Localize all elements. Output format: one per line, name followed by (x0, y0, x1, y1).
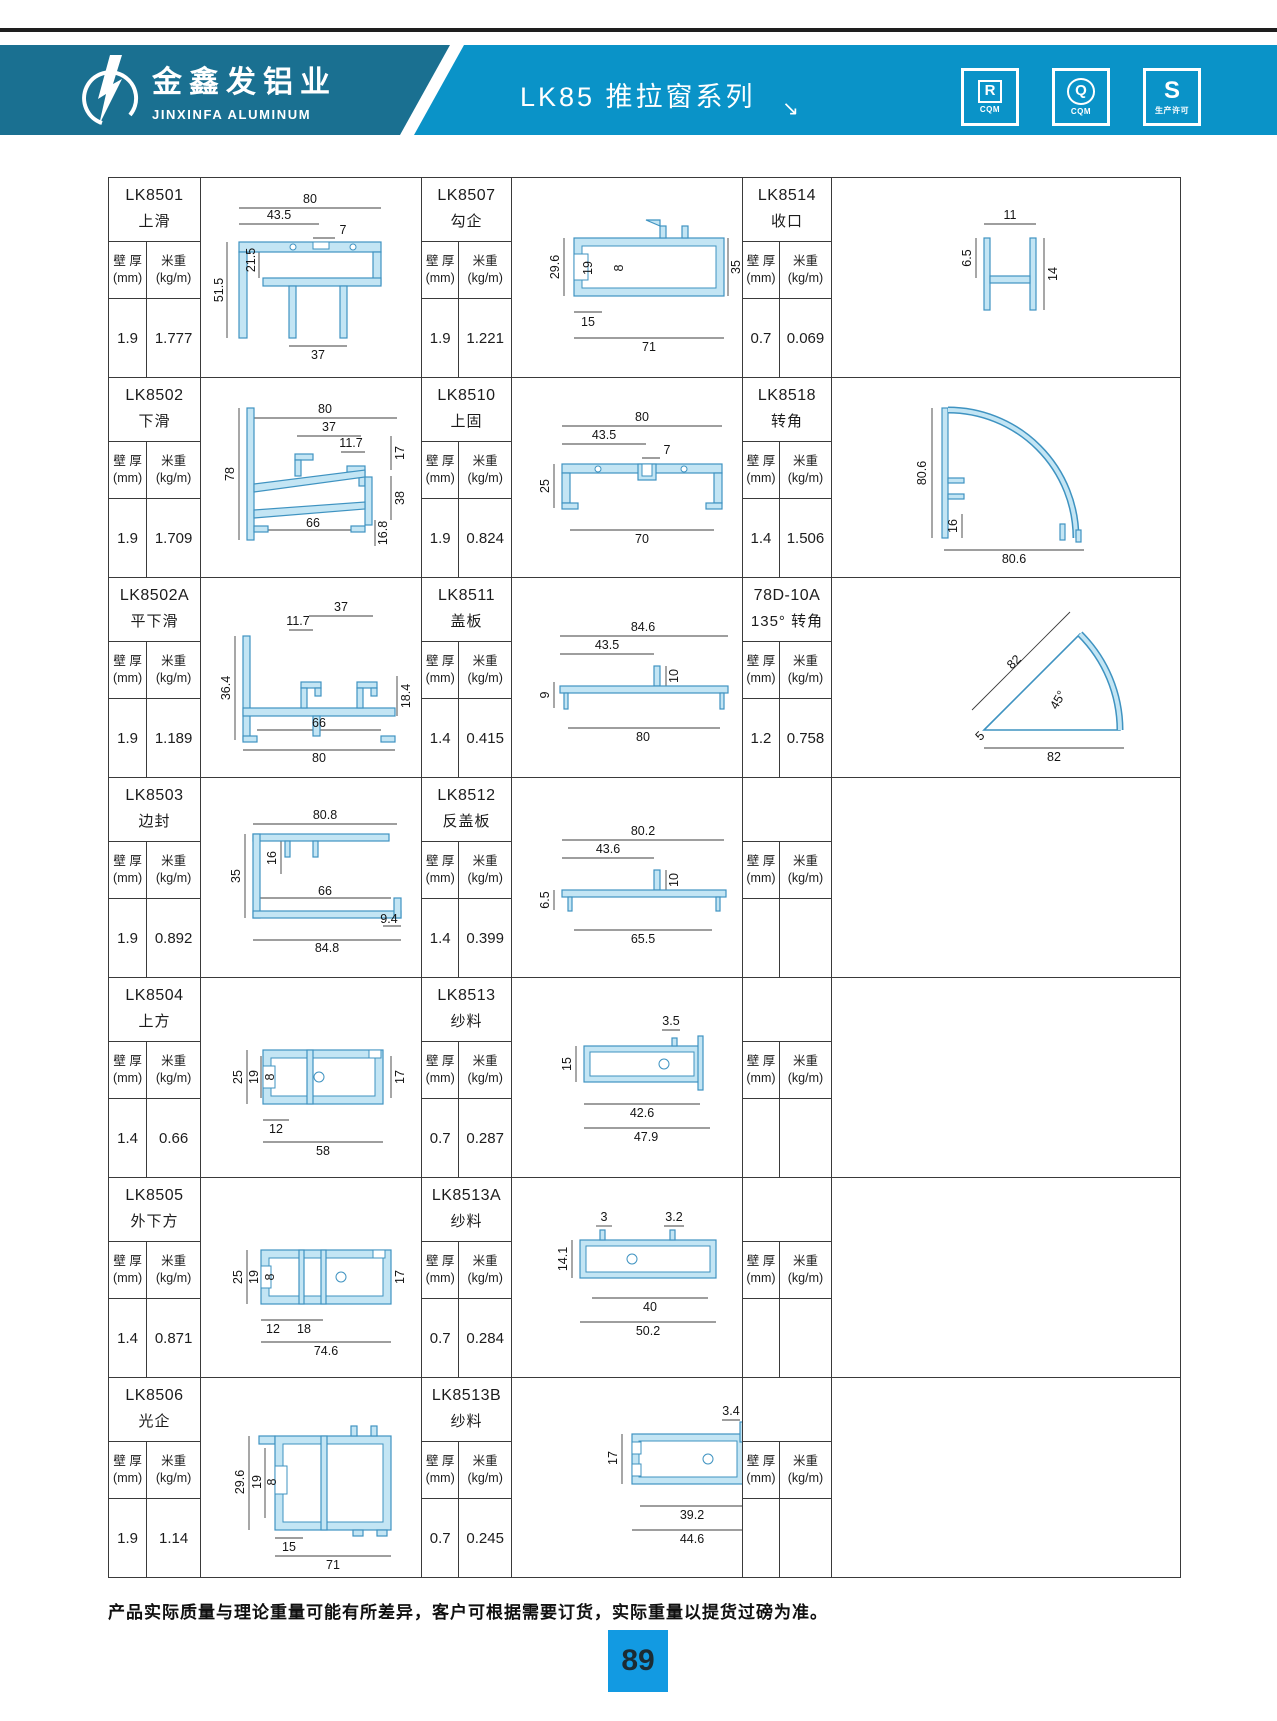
badge-letter: S (1164, 78, 1180, 104)
weight-value: 0.399 (459, 899, 511, 977)
dim-label: 3.2 (665, 1210, 682, 1224)
product-cell-LK8503: LK8503边封 壁 厚(mm) 米重(kg/m) 1.9 0.892 (109, 778, 201, 978)
profile-drawing-LK8511: 84.6 43.5 10 9 80 (512, 578, 743, 778)
dim-label: 15 (282, 1540, 296, 1554)
dim-label: 17 (393, 446, 407, 460)
product-cell-LK8511: LK8511盖板 壁 厚(mm) 米重(kg/m) 1.4 0.415 (422, 578, 512, 778)
profile-drawing-LK8513B: 3.4 17 39.2 44.6 (512, 1378, 743, 1578)
badge-subtext: 生产许可 (1155, 105, 1189, 116)
product-code: LK8513B (422, 1387, 511, 1405)
col-header-wall: 壁 厚(mm) (422, 842, 459, 898)
product-cell-LK8514: LK8514收口 壁 厚(mm) 米重(kg/m) 0.7 0.069 (743, 178, 832, 378)
wall-value: 1.9 (422, 299, 459, 377)
col-header-weight: 米重(kg/m) (780, 842, 831, 898)
col-header-wall: 壁 厚(mm) (422, 442, 459, 498)
dim-label: 50.2 (636, 1324, 660, 1338)
product-name: 纱料 (422, 1210, 511, 1231)
dim-label: 37 (322, 420, 336, 434)
dim-label: 6.5 (538, 891, 552, 908)
profile-drawing-LK8513: 3.5 15 42.6 47.9 (512, 978, 743, 1178)
wall-value: 0.7 (422, 1499, 459, 1577)
empty-drawing (832, 778, 1181, 978)
dim-label: 37 (334, 600, 348, 614)
profile-drawing-LK8505: 25 19 8 17 12 18 74.6 (201, 1178, 422, 1378)
col-header-weight: 米重(kg/m) (780, 242, 831, 298)
dim-label: 66 (306, 516, 320, 530)
product-name: 转角 (743, 410, 831, 431)
badge-q-cqm: Q CQM (1052, 68, 1110, 126)
col-header-wall: 壁 厚(mm) (743, 842, 780, 898)
series-title-text: LK85 推拉窗系列 (520, 82, 756, 112)
profile-drawing-LK8501: 80 43.5 7 21.5 51.5 37 (201, 178, 422, 378)
col-header-weight: 米重(kg/m) (147, 1442, 200, 1498)
wall-value: 1.9 (422, 499, 459, 577)
weight-value (780, 1299, 831, 1377)
dim-label: 9.4 (380, 912, 397, 926)
dim-label: 51.5 (212, 278, 226, 302)
profile-drawing-LK8503: 80.8 16 35 66 84.8 9.4 (201, 778, 422, 978)
product-cell-LK8506: LK8506光企 壁 厚(mm) 米重(kg/m) 1.9 1.14 (109, 1378, 201, 1578)
dim-label: 19 (247, 1070, 261, 1084)
dim-label: 66 (312, 716, 326, 730)
badge-letter: Q (1067, 78, 1095, 105)
dim-label: 12 (266, 1322, 280, 1336)
col-header-wall: 壁 厚(mm) (743, 242, 780, 298)
dim-label: 19 (247, 1270, 261, 1284)
col-header-wall: 壁 厚(mm) (743, 1242, 780, 1298)
dim-label: 14.1 (556, 1247, 570, 1271)
wall-value: 0.7 (743, 299, 780, 377)
empty-drawing (832, 978, 1181, 1178)
product-code: LK8501 (109, 187, 200, 205)
wall-value: 1.9 (109, 499, 147, 577)
badge-production-license: S 生产许可 (1143, 68, 1201, 126)
page-number-badge: 89 (608, 1630, 668, 1692)
page-number: 89 (621, 1644, 654, 1678)
dim-label: 14 (1046, 267, 1060, 281)
product-cell-LK8513B: LK8513B纱料 壁 厚(mm) 米重(kg/m) 0.7 0.245 (422, 1378, 512, 1578)
dim-label: 6.5 (960, 249, 974, 266)
wall-value (743, 899, 780, 977)
dim-label: 80 (318, 402, 332, 416)
product-name: 纱料 (422, 1410, 511, 1431)
product-code: LK8507 (422, 187, 511, 205)
dim-label: 80.6 (915, 461, 929, 485)
product-cell-LK8502A: LK8502A平下滑 壁 厚(mm) 米重(kg/m) 1.9 1.189 (109, 578, 201, 778)
col-header-wall: 壁 厚(mm) (422, 242, 459, 298)
dim-label: 11 (1004, 208, 1017, 222)
dim-label: 17 (393, 1070, 407, 1084)
profile-drawing-LK8514: 11 6.5 14 (832, 178, 1181, 378)
col-header-wall: 壁 厚(mm) (109, 1242, 147, 1298)
dim-label: 65.5 (631, 932, 655, 946)
dim-label: 80 (303, 192, 317, 206)
dim-label: 70 (635, 532, 649, 546)
dim-label: 16 (265, 851, 279, 865)
dim-label: 80 (312, 751, 326, 765)
col-header-weight: 米重(kg/m) (459, 842, 511, 898)
profile-drawing-LK8502A: 37 11.7 36.4 18.4 66 80 (201, 578, 422, 778)
dim-label: 8 (263, 1074, 277, 1081)
dim-label: 8 (263, 1274, 277, 1281)
product-code: LK8506 (109, 1387, 200, 1405)
dim-label: 43.5 (267, 208, 291, 222)
col-header-weight: 米重(kg/m) (459, 1242, 511, 1298)
col-header-wall: 壁 厚(mm) (422, 1442, 459, 1498)
weight-value: 0.758 (780, 699, 831, 777)
col-header-weight: 米重(kg/m) (459, 442, 511, 498)
profile-drawing-LK8513A: 3 3.2 14.1 40 50.2 (512, 1178, 743, 1378)
dim-label: 10 (667, 669, 681, 683)
product-cell-empty-2: 壁 厚(mm) 米重(kg/m) (743, 978, 832, 1178)
col-header-weight: 米重(kg/m) (459, 1042, 511, 1098)
product-name: 收口 (743, 210, 831, 231)
dim-label: 15 (581, 315, 595, 329)
col-header-wall: 壁 厚(mm) (109, 442, 147, 498)
product-name: 上滑 (109, 210, 200, 231)
wall-value: 1.4 (422, 699, 459, 777)
wall-value (743, 1099, 780, 1177)
dim-label: 42.6 (630, 1106, 654, 1120)
product-cell-LK8513: LK8513纱料 壁 厚(mm) 米重(kg/m) 0.7 0.287 (422, 978, 512, 1178)
weight-value (780, 1099, 831, 1177)
profile-drawing-LK8512: 80.2 43.6 10 6.5 65.5 (512, 778, 743, 978)
weight-value: 0.415 (459, 699, 511, 777)
weight-value: 1.221 (459, 299, 511, 377)
weight-value: 0.871 (147, 1299, 200, 1377)
wall-value: 1.2 (743, 699, 780, 777)
dim-label: 18 (297, 1322, 311, 1336)
product-cell-78D-10A: 78D-10A135° 转角 壁 厚(mm) 米重(kg/m) 1.2 0.75… (743, 578, 832, 778)
col-header-wall: 壁 厚(mm) (422, 1242, 459, 1298)
weight-value: 0.287 (459, 1099, 511, 1177)
empty-drawing (832, 1178, 1181, 1378)
dim-label: 11.7 (286, 614, 309, 628)
wall-value (743, 1299, 780, 1377)
product-name: 勾企 (422, 210, 511, 231)
dim-label: 17 (393, 1270, 407, 1284)
weight-value: 0.892 (147, 899, 200, 977)
col-header-wall: 壁 厚(mm) (422, 642, 459, 698)
product-name: 纱料 (422, 1010, 511, 1031)
col-header-weight: 米重(kg/m) (147, 842, 200, 898)
badge-subtext: CQM (1071, 107, 1091, 116)
product-table: LK8501上滑 壁 厚(mm) 米重(kg/m) 1.9 1.777 80 4… (108, 177, 1181, 1578)
product-code: LK8514 (743, 187, 831, 205)
profile-drawing-LK8506: 29.6 19 8 15 71 (201, 1378, 422, 1578)
profile-drawing-LK8502: 80 37 11.7 78 17 38 66 16.8 (201, 378, 422, 578)
dim-label: 84.6 (631, 620, 655, 634)
product-name: 上方 (109, 1010, 200, 1031)
col-header-wall: 壁 厚(mm) (109, 642, 147, 698)
dim-label: 7 (340, 223, 347, 237)
product-name: 反盖板 (422, 810, 511, 831)
dim-label: 35 (729, 260, 743, 274)
product-name: 上固 (422, 410, 511, 431)
dim-label: 58 (316, 1144, 330, 1158)
col-header-weight: 米重(kg/m) (780, 442, 831, 498)
empty-drawing (832, 1378, 1181, 1578)
dim-label: 17 (606, 1451, 620, 1465)
wall-value: 1.4 (109, 1299, 147, 1377)
col-header-wall: 壁 厚(mm) (743, 642, 780, 698)
product-cell-LK8512: LK8512反盖板 壁 厚(mm) 米重(kg/m) 1.4 0.399 (422, 778, 512, 978)
weight-value: 1.14 (147, 1499, 200, 1577)
product-cell-LK8513A: LK8513A纱料 壁 厚(mm) 米重(kg/m) 0.7 0.284 (422, 1178, 512, 1378)
dim-label: 35 (229, 869, 243, 883)
weight-value: 0.245 (459, 1499, 511, 1577)
dim-label: 29.6 (548, 255, 562, 279)
col-header-wall: 壁 厚(mm) (109, 842, 147, 898)
badge-r-cqm: R CQM (961, 68, 1019, 126)
profile-drawing-LK8518: 80.6 16 80.6 (832, 378, 1181, 578)
dim-label: 47.9 (634, 1130, 658, 1144)
dim-label: 3.4 (722, 1404, 739, 1418)
dim-label: 19 (581, 261, 595, 275)
dim-label: 25 (231, 1070, 245, 1084)
dim-label: 21.5 (244, 248, 258, 272)
product-code: LK8502A (109, 587, 200, 605)
col-header-wall: 壁 厚(mm) (109, 1042, 147, 1098)
dim-label: 43.5 (595, 638, 619, 652)
profile-drawing-LK8507: 29.6 19 8 15 71 35 (512, 178, 743, 378)
badge-subtext: CQM (980, 105, 1000, 114)
product-name: 135° 转角 (743, 610, 831, 631)
weight-value: 1.506 (780, 499, 831, 577)
dim-label: 84.8 (315, 941, 339, 955)
badge-letter: R (978, 80, 1003, 103)
product-name: 下滑 (109, 410, 200, 431)
col-header-weight: 米重(kg/m) (780, 1242, 831, 1298)
dim-label: 19 (250, 1475, 264, 1489)
product-code: LK8511 (422, 587, 511, 605)
product-name: 外下方 (109, 1210, 200, 1231)
product-code: LK8502 (109, 387, 200, 405)
brand-logo-icon (72, 53, 144, 132)
col-header-weight: 米重(kg/m) (147, 242, 200, 298)
brand-name-en: JINXINFA ALUMINUM (152, 107, 337, 122)
dim-label: 7 (664, 443, 671, 457)
product-code: LK8504 (109, 987, 200, 1005)
wall-value: 1.4 (422, 899, 459, 977)
dim-label: 8 (612, 265, 626, 272)
arrow-down-right-icon: ↘ (782, 96, 802, 121)
weight-value: 1.189 (147, 699, 200, 777)
wall-value: 1.9 (109, 899, 147, 977)
product-code: LK8510 (422, 387, 511, 405)
col-header-weight: 米重(kg/m) (147, 1042, 200, 1098)
col-header-weight: 米重(kg/m) (147, 642, 200, 698)
product-code: LK8505 (109, 1187, 200, 1205)
product-cell-LK8518: LK8518转角 壁 厚(mm) 米重(kg/m) 1.4 1.506 (743, 378, 832, 578)
dim-label: 82 (1047, 750, 1061, 764)
dim-label: 43.6 (596, 842, 620, 856)
dim-label: 80 (636, 730, 650, 744)
dim-label: 16 (946, 519, 960, 533)
dim-label: 43.5 (592, 428, 616, 442)
dim-label: 80.6 (1002, 552, 1026, 566)
profile-drawing-LK8510: 80 43.5 7 25 70 (512, 378, 743, 578)
product-name: 盖板 (422, 610, 511, 631)
dim-label: 80.2 (631, 824, 655, 838)
wall-value (743, 1499, 780, 1577)
product-cell-LK8507: LK8507勾企 壁 厚(mm) 米重(kg/m) 1.9 1.221 (422, 178, 512, 378)
product-cell-LK8510: LK8510上固 壁 厚(mm) 米重(kg/m) 1.9 0.824 (422, 378, 512, 578)
product-name: 边封 (109, 810, 200, 831)
product-code: 78D-10A (743, 587, 831, 605)
dim-label: 3.5 (662, 1014, 679, 1028)
col-header-weight: 米重(kg/m) (459, 242, 511, 298)
profile-drawing-LK8504: 25 19 8 17 12 58 (201, 978, 422, 1178)
dim-label: 66 (318, 884, 332, 898)
col-header-wall: 壁 厚(mm) (422, 1042, 459, 1098)
weight-value: 0.069 (780, 299, 831, 377)
wall-value: 0.7 (422, 1299, 459, 1377)
weight-value (780, 899, 831, 977)
product-code: LK8512 (422, 787, 511, 805)
wall-value: 1.9 (109, 1499, 147, 1577)
profile-drawing-78D-10A: 82 45° 5 82 (832, 578, 1181, 778)
col-header-weight: 米重(kg/m) (459, 1442, 511, 1498)
product-name: 光企 (109, 1410, 200, 1431)
product-cell-LK8505: LK8505外下方 壁 厚(mm) 米重(kg/m) 1.4 0.871 (109, 1178, 201, 1378)
weight-value (780, 1499, 831, 1577)
dim-label: 80.8 (313, 808, 337, 822)
col-header-wall: 壁 厚(mm) (743, 1042, 780, 1098)
dim-label: 29.6 (233, 1470, 247, 1494)
col-header-weight: 米重(kg/m) (147, 1242, 200, 1298)
dim-label: 3 (601, 1210, 608, 1224)
weight-value: 0.284 (459, 1299, 511, 1377)
weight-value: 1.777 (147, 299, 200, 377)
dim-label: 80 (635, 410, 649, 424)
product-cell-LK8501: LK8501上滑 壁 厚(mm) 米重(kg/m) 1.9 1.777 (109, 178, 201, 378)
product-code: LK8513 (422, 987, 511, 1005)
product-cell-LK8504: LK8504上方 壁 厚(mm) 米重(kg/m) 1.4 0.66 (109, 978, 201, 1178)
col-header-weight: 米重(kg/m) (780, 1442, 831, 1498)
product-name: 平下滑 (109, 610, 200, 631)
wall-value: 1.4 (109, 1099, 147, 1177)
dim-label: 38 (393, 491, 407, 505)
series-title: LK85 推拉窗系列 ↘ (520, 75, 802, 114)
dim-label: 10 (667, 873, 681, 887)
product-code: LK8513A (422, 1187, 511, 1205)
dim-label: 15 (560, 1057, 574, 1071)
weight-value: 0.824 (459, 499, 511, 577)
product-cell-empty-3: 壁 厚(mm) 米重(kg/m) (743, 1178, 832, 1378)
product-code: LK8518 (743, 387, 831, 405)
col-header-weight: 米重(kg/m) (147, 442, 200, 498)
col-header-weight: 米重(kg/m) (780, 1042, 831, 1098)
dim-label: 78 (223, 467, 237, 481)
col-header-wall: 壁 厚(mm) (743, 442, 780, 498)
col-header-wall: 壁 厚(mm) (109, 1442, 147, 1498)
product-cell-empty-1: 壁 厚(mm) 米重(kg/m) (743, 778, 832, 978)
dim-label: 71 (642, 340, 656, 354)
footer-note: 产品实际质量与理论重量可能有所差异，客户可根据需要订货，实际重量以提货过磅为准。 (108, 1598, 828, 1623)
header-band: 金鑫发铝业 JINXINFA ALUMINUM LK85 推拉窗系列 ↘ R C… (0, 45, 1277, 135)
dim-label: 44.6 (680, 1532, 704, 1546)
brand-name-cn: 金鑫发铝业 (152, 57, 337, 101)
product-code: LK8503 (109, 787, 200, 805)
wall-value: 1.9 (109, 299, 147, 377)
top-rule (0, 28, 1277, 32)
dim-label: 36.4 (219, 676, 233, 700)
weight-value: 0.66 (147, 1099, 200, 1177)
dim-label: 9 (538, 692, 552, 699)
dim-label: 74.6 (314, 1344, 338, 1358)
dim-label: 25 (231, 1270, 245, 1284)
weight-value: 1.709 (147, 499, 200, 577)
col-header-weight: 米重(kg/m) (459, 642, 511, 698)
col-header-wall: 壁 厚(mm) (743, 1442, 780, 1498)
wall-value: 1.9 (109, 699, 147, 777)
certification-badges: R CQM Q CQM S 生产许可 (961, 68, 1201, 126)
dim-label: 18.4 (399, 684, 413, 708)
brand-block: 金鑫发铝业 JINXINFA ALUMINUM (152, 57, 337, 122)
dim-label: 8 (265, 1479, 279, 1486)
col-header-wall: 壁 厚(mm) (109, 242, 147, 298)
dim-label: 12 (269, 1122, 283, 1136)
product-cell-LK8502: LK8502下滑 壁 厚(mm) 米重(kg/m) 1.9 1.709 (109, 378, 201, 578)
dim-label: 71 (326, 1558, 340, 1572)
col-header-weight: 米重(kg/m) (780, 642, 831, 698)
dim-label: 39.2 (680, 1508, 704, 1522)
product-cell-empty-4: 壁 厚(mm) 米重(kg/m) (743, 1378, 832, 1578)
dim-label: 16.8 (376, 521, 390, 545)
wall-value: 0.7 (422, 1099, 459, 1177)
dim-label: 25 (538, 479, 552, 493)
wall-value: 1.4 (743, 499, 780, 577)
dim-label: 40 (643, 1300, 657, 1314)
dim-label: 11.7 (339, 436, 362, 450)
dim-label: 37 (311, 348, 325, 362)
